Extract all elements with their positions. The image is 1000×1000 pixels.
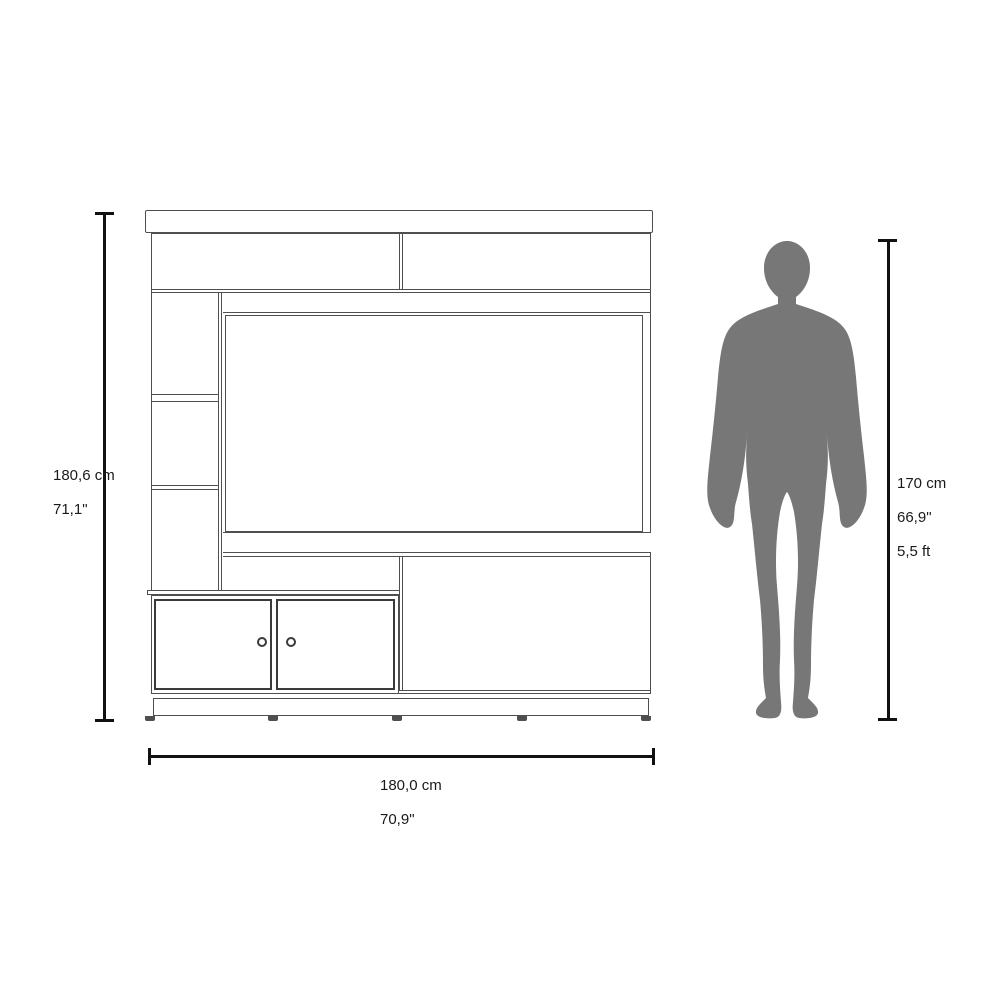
side-column-shelf-upper (152, 394, 218, 402)
door-knob-right (286, 637, 296, 647)
side-column-shelf-lower (152, 485, 218, 490)
tv-back-panel (225, 315, 643, 532)
base-plinth (153, 698, 649, 716)
width-dimension-cap-right (652, 748, 655, 765)
lower-section-divider (399, 557, 403, 690)
furniture-foot (641, 716, 651, 721)
width-dimension-cap-left (148, 748, 151, 765)
human-silhouette (702, 240, 872, 720)
person-dimension-line (887, 240, 890, 719)
width-dimension-line (149, 755, 654, 758)
height-inch-value: 71,1" (53, 501, 115, 518)
human-silhouette-shape (707, 241, 866, 718)
tv-bay-bottom-shelf (223, 532, 651, 553)
side-column-wall (218, 293, 222, 590)
product-dimension-diagram: 180,6 cm 71,1" 180,0 cm 70,9" 170 cm 66,… (0, 0, 1000, 1000)
width-cm-value: 180,0 cm (380, 777, 442, 794)
cabinet-door-left (154, 599, 272, 690)
width-inch-value: 70,9" (380, 811, 442, 828)
person-dimension-cap-bottom (878, 718, 897, 721)
door-knob-left (257, 637, 267, 647)
tv-bay-top-shelf (223, 293, 650, 313)
furniture-foot (392, 716, 402, 721)
top-board (145, 210, 653, 233)
person-height-label: 170 cm 66,9" 5,5 ft (897, 458, 946, 577)
furniture-foot (145, 716, 155, 721)
tv-bay-bottom-shelf-edge (223, 553, 651, 557)
height-dimension-label: 180,6 cm 71,1" (53, 450, 115, 535)
hutch-shelf-divider (399, 234, 403, 289)
height-cm-value: 180,6 cm (53, 467, 115, 484)
furniture-foot (268, 716, 278, 721)
height-dimension-cap-bottom (95, 719, 114, 722)
height-dimension-cap-top (95, 212, 114, 215)
person-dimension-cap-top (878, 239, 897, 242)
person-ft-value: 5,5 ft (897, 543, 946, 560)
furniture-foot (517, 716, 527, 721)
person-cm-value: 170 cm (897, 475, 946, 492)
person-inch-value: 66,9" (897, 509, 946, 526)
width-dimension-label: 180,0 cm 70,9" (380, 760, 442, 845)
